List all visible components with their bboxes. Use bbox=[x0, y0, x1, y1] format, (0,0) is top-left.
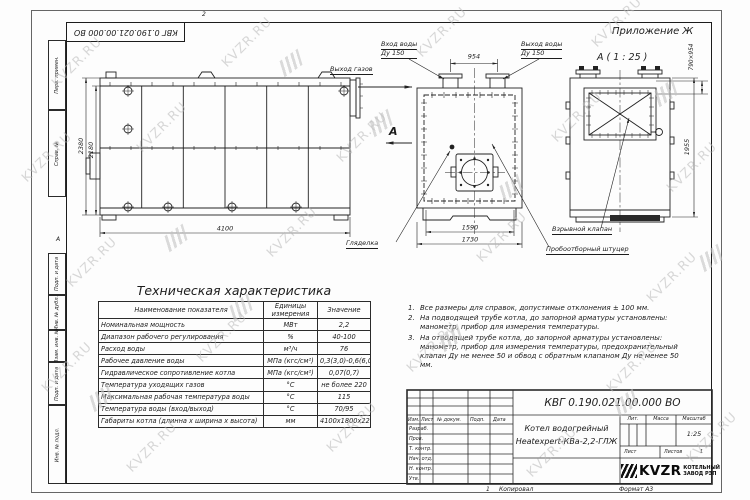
tb-sheets-value: 1 bbox=[700, 449, 703, 455]
spec-value-cell: 0,07(0,7) bbox=[318, 367, 371, 379]
tb-row-tkontr: Т. контр. bbox=[409, 446, 432, 452]
spec-table-body: Номинальная мощностьМВт2,2Диапазон рабоч… bbox=[99, 319, 371, 428]
spec-name-cell: Гидравлическое сопротивление котла bbox=[99, 367, 264, 379]
spec-table-title: Техническая характеристика bbox=[98, 283, 370, 298]
spec-value-cell: % bbox=[264, 331, 318, 343]
spec-name-cell: Максимальная рабочая температура воды bbox=[99, 391, 264, 403]
kvzr-caption-line1: КОТЕЛЬНЫЙ bbox=[683, 465, 720, 471]
label-explosion-valve: Взрывной клапан bbox=[552, 226, 612, 235]
appendix-label: Приложение Ж bbox=[612, 26, 693, 37]
tb-row-razrab: Разраб. bbox=[409, 426, 428, 432]
dim-side-length: 4100 bbox=[217, 225, 234, 232]
tb-row-nkontr: Н. контр. bbox=[409, 466, 432, 472]
note-number: 3. bbox=[408, 334, 420, 371]
dim-section-height: 1955 bbox=[683, 139, 691, 156]
spec-value-cell: не более 220 bbox=[318, 379, 371, 391]
dim-front-top: 954 bbox=[468, 53, 480, 60]
tb-product-line1: Котел водогрейный bbox=[525, 423, 609, 436]
kvzr-caption-line2: ЗАВОД РЭП bbox=[683, 471, 720, 477]
table-row: Номинальная мощностьМВт2,2 bbox=[99, 319, 371, 331]
tb-col-podp: Подп. bbox=[470, 417, 485, 423]
front-view bbox=[417, 68, 522, 234]
zone-mark-top: 2 bbox=[202, 11, 206, 18]
tb-scale-value: 1:25 bbox=[676, 430, 712, 438]
table-row: Гидравлическое сопротивление котлаМПа (к… bbox=[99, 367, 371, 379]
label-gas-out: Выход газов bbox=[330, 66, 373, 75]
tb-row-prov: Пров. bbox=[409, 436, 423, 442]
label-water-in: Вход воды Ду 150 bbox=[381, 41, 417, 59]
label-sampler-text: Пробоотборный штуцер bbox=[546, 246, 629, 255]
tb-lit-label: Лит. bbox=[620, 416, 646, 422]
side-view bbox=[86, 72, 363, 220]
table-row: Рабочее давление водыМПа (кгс/см²)0,3(3,… bbox=[99, 355, 371, 367]
side-dimensions bbox=[82, 78, 350, 237]
spec-header-units: Единицы измерения bbox=[264, 302, 318, 319]
label-water-out: Выход воды Ду 150 bbox=[521, 41, 562, 59]
spec-header-name: Наименование показателя bbox=[99, 302, 264, 319]
spec-table: Наименование показателя Единицы измерени… bbox=[98, 301, 371, 428]
spec-name-cell: Рабочее давление воды bbox=[99, 355, 264, 367]
kvzr-logo: KVZR КОТЕЛЬНЫЙ ЗАВОД РЭП bbox=[621, 459, 711, 482]
tb-col-dokum: № докум. bbox=[437, 417, 461, 423]
bottom-zone: 1 bbox=[486, 486, 490, 493]
tb-row-nachotd: Нач. отд. bbox=[409, 456, 432, 462]
spec-value-cell: 76 bbox=[318, 343, 371, 355]
note-number: 1. bbox=[408, 304, 420, 313]
spec-value-cell: МПа (кгс/см²) bbox=[264, 367, 318, 379]
spec-value-cell: 2,2 bbox=[318, 319, 371, 331]
note-text: На подводящей трубе котла, до запорной а… bbox=[420, 314, 680, 332]
spec-value-cell: 40-100 bbox=[318, 331, 371, 343]
label-water-in-line2: Ду 150 bbox=[381, 50, 417, 59]
zone-mark-left: А bbox=[56, 236, 60, 243]
dim-front-outer: 1730 bbox=[462, 236, 479, 243]
tb-col-izm: Изм. bbox=[408, 417, 420, 423]
spec-value-cell: 115 bbox=[318, 391, 371, 403]
tb-doc-number: КВГ 0.190.021.00.000 ВО bbox=[513, 390, 712, 415]
spec-value-cell: 70/95 bbox=[318, 403, 371, 415]
dim-section-hatch: 790×954 bbox=[689, 44, 695, 71]
kvzr-logo-caption: КОТЕЛЬНЫЙ ЗАВОД РЭП bbox=[683, 465, 720, 477]
tb-row-utv: Утв. bbox=[409, 476, 419, 482]
drawing-sheet: { "sheet": { "appendix_label": "Приложен… bbox=[0, 0, 750, 500]
kvzr-logo-icon bbox=[621, 464, 637, 478]
spec-header-value: Значение bbox=[318, 302, 371, 319]
spec-value-cell: °С bbox=[264, 379, 318, 391]
tb-col-data: Дата bbox=[493, 417, 506, 423]
tb-col-list: Лист bbox=[421, 417, 433, 423]
spec-value-cell: МВт bbox=[264, 319, 318, 331]
spec-table-block: Техническая характеристика Наименование … bbox=[98, 283, 370, 428]
spec-name-cell: Габариты котла (длинна х ширина х высота… bbox=[99, 415, 264, 427]
tb-mass-label: Масса bbox=[646, 416, 676, 422]
note-text: Все размеры для справок, допустимые откл… bbox=[420, 304, 680, 313]
dim-side-height-outer: 2380 bbox=[77, 138, 85, 155]
spec-value-cell: мм bbox=[264, 415, 318, 427]
dim-front-inner: 1590 bbox=[462, 224, 479, 231]
label-explosion-valve-text: Взрывной клапан bbox=[552, 226, 612, 235]
kvzr-logo-text: KVZR bbox=[639, 463, 681, 479]
spec-name-cell: Номинальная мощность bbox=[99, 319, 264, 331]
spec-name-cell: Диапазон рабочего регулирования bbox=[99, 331, 264, 343]
note-item: 2.На подводящей трубе котла, до запорной… bbox=[408, 314, 680, 332]
note-text: На отводящей трубе котла, до запорной ар… bbox=[420, 334, 680, 371]
tb-product-line2: Heatexpert-КВа-2,2-ГЛЖ bbox=[516, 436, 618, 449]
table-row: Расход водым³/ч76 bbox=[99, 343, 371, 355]
rotated-doc-number-box: КВГ 0.190.021.00.000 ВО bbox=[66, 22, 185, 42]
table-row: Максимальная рабочая температура воды°С1… bbox=[99, 391, 371, 403]
bottom-format-label: Формат А3 bbox=[619, 486, 653, 493]
spec-name-cell: Расход воды bbox=[99, 343, 264, 355]
rotated-doc-number: КВГ 0.190.021.00.000 ВО bbox=[74, 28, 178, 37]
label-water-out-line2: Ду 150 bbox=[521, 50, 562, 59]
dim-side-height-inner: 2180 bbox=[87, 142, 95, 159]
spec-value-cell: °С bbox=[264, 391, 318, 403]
spec-name-cell: Температура воды (вход/выход) bbox=[99, 403, 264, 415]
bottom-copied-label: Копировал bbox=[499, 486, 533, 493]
table-row: Диапазон рабочего регулирования%40-100 bbox=[99, 331, 371, 343]
note-item: 3.На отводящей трубе котла, до запорной … bbox=[408, 334, 680, 371]
note-number: 2. bbox=[408, 314, 420, 332]
tb-scale-label: Масштаб bbox=[676, 416, 712, 422]
tb-product-name: Котел водогрейный Heatexpert-КВа-2,2-ГЛЖ bbox=[513, 416, 620, 456]
table-row: Температура воды (вход/выход)°С70/95 bbox=[99, 403, 371, 415]
tb-sheets-label: Листов bbox=[664, 449, 682, 455]
table-row: Температура уходящих газов°Сне более 220 bbox=[99, 379, 371, 391]
section-view bbox=[566, 66, 674, 232]
section-mark: А bbox=[389, 125, 398, 138]
spec-name-cell: Температура уходящих газов bbox=[99, 379, 264, 391]
label-gas-out-text: Выход газов bbox=[330, 66, 373, 75]
label-sight-glass: Гляделка bbox=[346, 240, 378, 249]
tb-sheet-label: Лист bbox=[624, 449, 636, 455]
notes-list: 1.Все размеры для справок, допустимые от… bbox=[408, 304, 680, 372]
spec-value-cell: м³/ч bbox=[264, 343, 318, 355]
spec-value-cell: 0,3(3,0)-0,6(6,0) bbox=[318, 355, 371, 367]
table-row: Габариты котла (длинна х ширина х высота… bbox=[99, 415, 371, 427]
spec-table-header-row: Наименование показателя Единицы измерени… bbox=[99, 302, 371, 319]
section-view-title: А ( 1 : 25 ) bbox=[597, 52, 647, 63]
spec-value-cell: °С bbox=[264, 403, 318, 415]
note-item: 1.Все размеры для справок, допустимые от… bbox=[408, 304, 680, 313]
spec-value-cell: 4100х1800х2280 bbox=[318, 415, 371, 427]
section-dimensions bbox=[656, 78, 708, 217]
label-sight-glass-text: Гляделка bbox=[346, 240, 378, 249]
label-sampler: Пробоотборный штуцер bbox=[546, 246, 629, 255]
spec-value-cell: МПа (кгс/см²) bbox=[264, 355, 318, 367]
